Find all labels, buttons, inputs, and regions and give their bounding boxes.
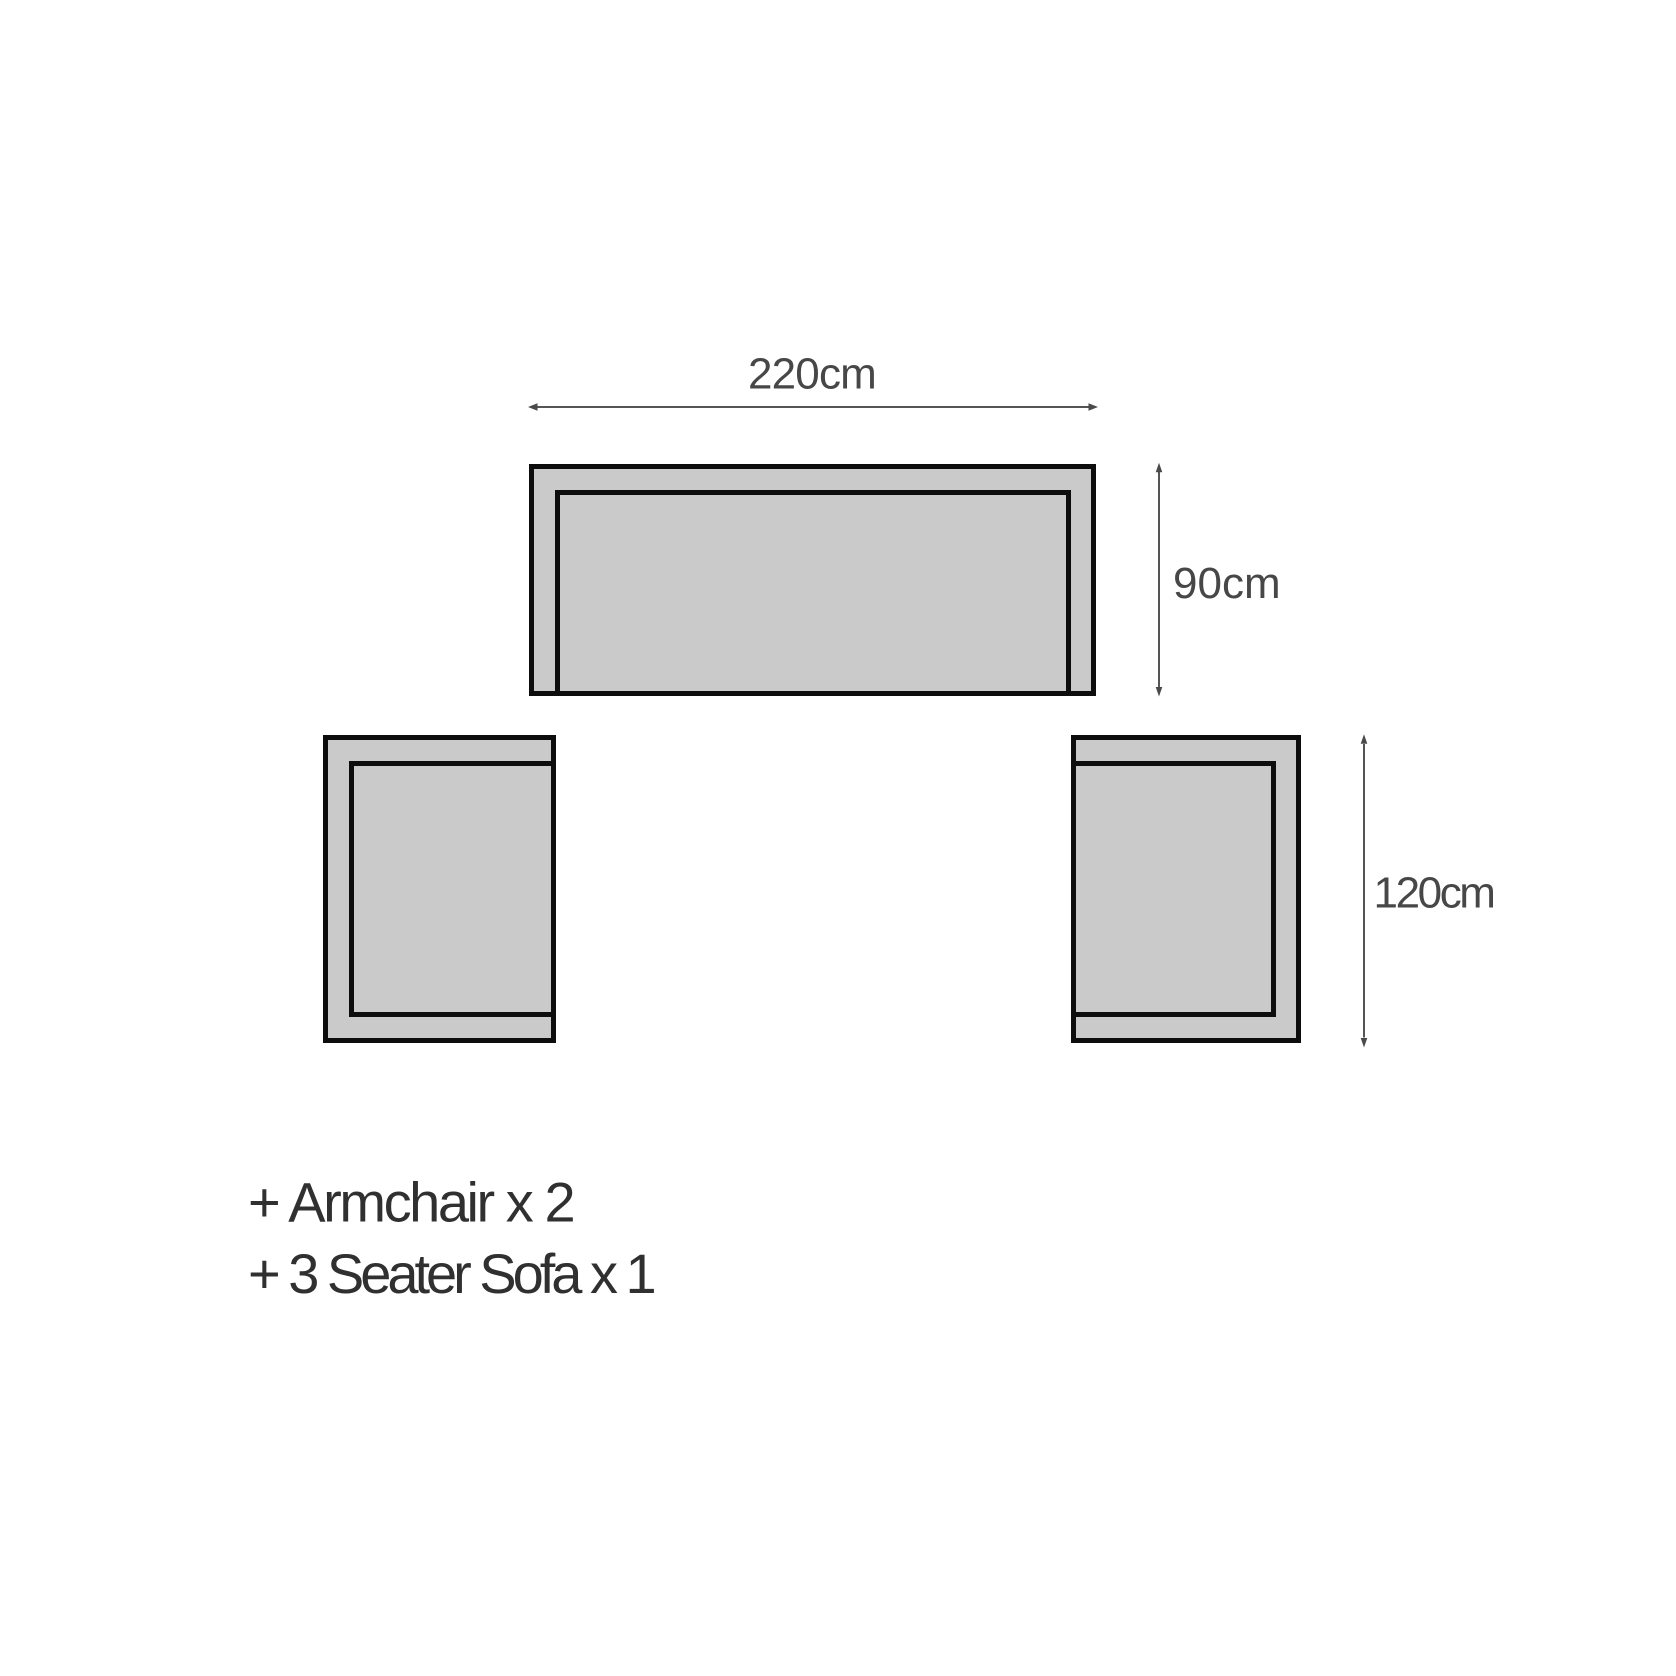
svg-text:+ 3 Seater Sofa x 1: + 3 Seater Sofa x 1 <box>248 1242 654 1305</box>
svg-text:+ Armchair x 2: + Armchair x 2 <box>248 1171 573 1234</box>
svg-text:90cm: 90cm <box>1173 559 1281 608</box>
svg-text:120cm: 120cm <box>1374 869 1494 918</box>
svg-text:220cm: 220cm <box>748 350 876 399</box>
